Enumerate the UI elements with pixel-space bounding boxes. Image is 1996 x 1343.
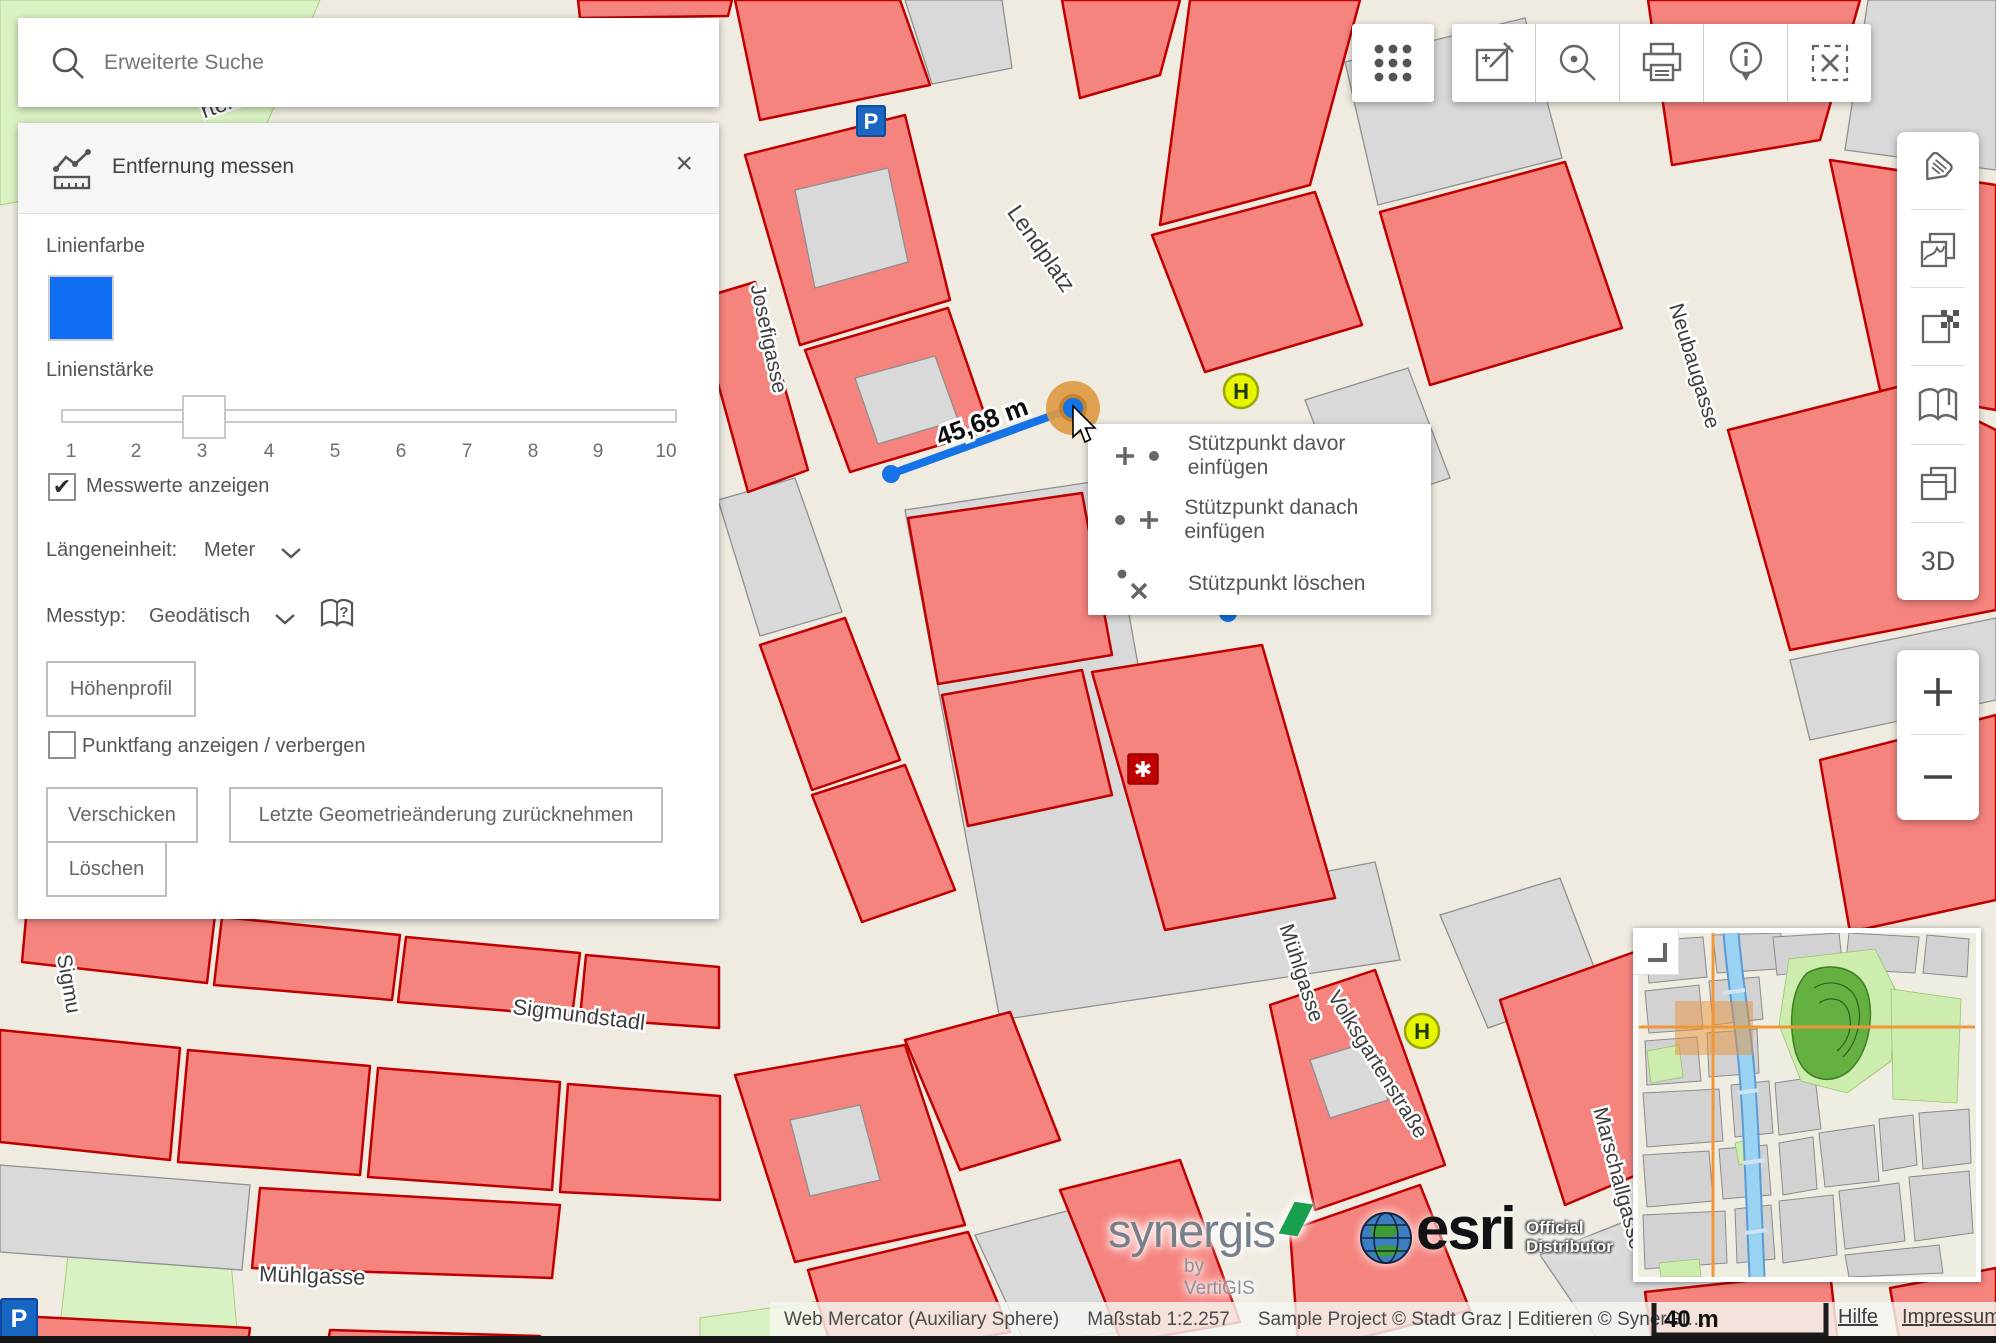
parking-icon: P: [0, 1298, 38, 1340]
scale-label: Maßstab 1:2.257: [1087, 1309, 1230, 1331]
overview-map[interactable]: [1633, 928, 1981, 1282]
tag-button[interactable]: [1897, 132, 1979, 209]
copyright-label: Sample Project © Stadt Graz | Editieren …: [1258, 1309, 1706, 1331]
parking-icon: P: [857, 106, 885, 136]
map-toolbar: [1452, 24, 1871, 102]
line-color-label: Linienfarbe: [46, 235, 145, 258]
apps-grid-button[interactable]: [1352, 24, 1434, 102]
measure-type-value[interactable]: Geodätisch: [149, 605, 250, 628]
search-icon: [48, 43, 88, 83]
slider-tick: 5: [330, 441, 341, 463]
view-3d-button[interactable]: 3D: [1897, 523, 1979, 600]
delete-vertex-icon: [1104, 562, 1174, 606]
measure-type-label: Messtyp:: [46, 605, 126, 628]
slider-tick: 3: [197, 441, 208, 463]
edit-redline-button[interactable]: [1452, 24, 1535, 102]
footer-links: Hilfe Impressum: [1838, 1306, 1996, 1329]
show-values-checkbox[interactable]: ✔: [48, 473, 76, 501]
search-input[interactable]: [102, 50, 646, 76]
basemap-button[interactable]: [1897, 288, 1979, 365]
slider-tick: 8: [528, 441, 539, 463]
print-button[interactable]: [1619, 24, 1703, 102]
zoom-in-button[interactable]: [1897, 650, 1979, 734]
panel-title: Entfernung messen: [112, 155, 294, 179]
esri-globe-icon: [1358, 1210, 1416, 1268]
synergis-wordmark: synergis: [1108, 1204, 1275, 1257]
slider-tick: 4: [264, 441, 275, 463]
zoom-controls: [1897, 650, 1979, 820]
copy-layers-icon: [1915, 460, 1961, 506]
elevation-profile-button[interactable]: Höhenprofil: [46, 661, 196, 717]
zoom-point-button[interactable]: [1535, 24, 1619, 102]
menu-item-delete-vertex[interactable]: Stützpunkt löschen: [1088, 552, 1431, 615]
measure-vertex: [882, 465, 900, 483]
snap-checkbox[interactable]: [48, 731, 76, 759]
plus-icon: [1921, 675, 1955, 709]
themes-button[interactable]: [1897, 210, 1979, 287]
svg-text:?: ?: [339, 604, 348, 621]
line-width-slider-track[interactable]: [61, 409, 677, 423]
undo-geometry-button[interactable]: Letzte Geometrieänderung zurücknehmen: [229, 787, 663, 843]
slider-tick: 1: [66, 441, 77, 463]
close-icon[interactable]: ×: [675, 149, 693, 179]
menu-item-insert-before[interactable]: Stützpunkt davor einfügen: [1088, 424, 1431, 487]
zoom-point-icon: [1554, 39, 1602, 87]
slider-tick: 7: [462, 441, 473, 463]
line-width-label: Linienstärke: [46, 359, 154, 382]
snap-label: Punktfang anzeigen / verbergen: [82, 735, 366, 758]
projection-label: Web Mercator (Auxiliary Sphere): [784, 1309, 1059, 1331]
overview-map-canvas: [1638, 933, 1976, 1277]
scale-bar: 40 m: [1650, 1299, 1835, 1341]
info-button[interactable]: [1703, 24, 1787, 102]
help-book-icon[interactable]: ?: [318, 595, 358, 633]
slider-tick: 9: [593, 441, 604, 463]
send-button[interactable]: Verschicken: [46, 787, 198, 843]
themes-icon: [1915, 226, 1961, 272]
scale-bar-label: 40 m: [1664, 1306, 1719, 1333]
print-icon: [1637, 39, 1687, 87]
mouse-cursor: [1070, 404, 1106, 446]
length-unit-value[interactable]: Meter: [204, 539, 255, 562]
help-link[interactable]: Hilfe: [1838, 1306, 1878, 1329]
mapbook-icon: [1914, 383, 1962, 427]
menu-item-label: Stützpunkt danach einfügen: [1184, 496, 1431, 544]
slider-tick: 2: [131, 441, 142, 463]
apps-grid-icon: [1370, 40, 1416, 86]
transit-stop-icon: H: [1224, 374, 1258, 408]
copy-layers-button[interactable]: [1897, 445, 1979, 522]
synergis-logo: synergis by VertiGIS: [1108, 1203, 1275, 1258]
basemap-icon: [1915, 304, 1961, 350]
info-icon: [1722, 38, 1770, 88]
clear-selection-button[interactable]: [1787, 24, 1871, 102]
slider-tick: 10: [655, 441, 676, 463]
tag-icon: [1915, 148, 1961, 194]
imprint-link[interactable]: Impressum: [1902, 1306, 1996, 1329]
bottom-bar: [0, 1336, 1996, 1343]
mapbook-button[interactable]: [1897, 366, 1979, 443]
insert-vertex-before-icon: [1104, 436, 1174, 476]
line-color-swatch[interactable]: [48, 275, 114, 341]
menu-item-insert-after[interactable]: Stützpunkt danach einfügen: [1088, 488, 1431, 551]
clear-selection-icon: [1806, 39, 1854, 87]
transit-stop-icon: H: [1405, 1014, 1439, 1048]
menu-item-label: Stützpunkt löschen: [1188, 572, 1365, 596]
measure-distance-icon: [50, 147, 96, 193]
svg-text:H: H: [1233, 379, 1249, 404]
overview-collapse-button[interactable]: [1633, 930, 1679, 975]
length-unit-label: Längeneinheit:: [46, 539, 177, 562]
synergis-byline: by VertiGIS: [1184, 1256, 1275, 1300]
measure-distance-panel: Entfernung messen × Linienstärke Linienf…: [18, 123, 719, 919]
show-values-label: Messwerte anzeigen: [86, 475, 269, 498]
menu-item-label: Stützpunkt davor einfügen: [1188, 432, 1431, 480]
chevron-down-icon[interactable]: [274, 613, 296, 627]
hospital-icon: ✱: [1128, 754, 1158, 784]
zoom-out-button[interactable]: [1897, 735, 1979, 819]
view-3d-label: 3D: [1921, 546, 1956, 577]
minus-icon: [1921, 760, 1955, 794]
chevron-down-icon[interactable]: [280, 547, 302, 561]
search-bar[interactable]: [18, 18, 719, 107]
panel-header: Entfernung messen ×: [18, 123, 719, 214]
edit-redline-icon: [1470, 39, 1518, 87]
delete-button[interactable]: Löschen: [46, 841, 167, 897]
svg-text:P: P: [864, 109, 879, 134]
collapse-corner-icon: [1639, 935, 1673, 969]
right-sidebar: 3D: [1897, 132, 1979, 600]
svg-text:H: H: [1414, 1019, 1430, 1044]
line-width-slider-handle[interactable]: [182, 395, 226, 439]
slider-tick: 6: [396, 441, 407, 463]
vertex-context-menu: Stützpunkt davor einfügen Stützpunkt dan…: [1088, 424, 1431, 615]
esri-distributor-label: Official Distributor: [1526, 1218, 1613, 1256]
esri-wordmark: esri: [1416, 1194, 1515, 1263]
street-label: Mühlgasse: [259, 1261, 366, 1290]
insert-vertex-after-icon: [1104, 500, 1170, 540]
svg-text:✱: ✱: [1134, 757, 1152, 782]
